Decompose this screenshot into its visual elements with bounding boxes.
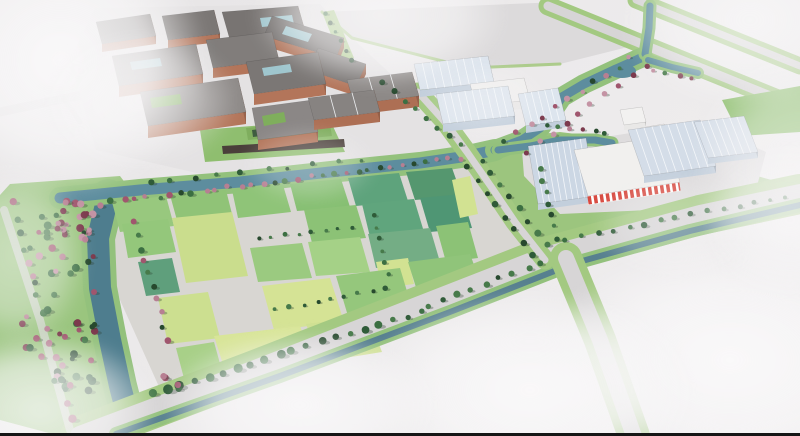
masterplan-aerial-rendering xyxy=(0,0,800,436)
plot-c3r2 xyxy=(308,237,370,276)
branch-road-south xyxy=(566,258,634,436)
plot-c3r0 xyxy=(290,179,350,211)
pond-white-building xyxy=(620,107,646,130)
plot-c3r1 xyxy=(304,205,366,243)
site-plan-scene xyxy=(0,0,800,436)
plot-c2r2 xyxy=(250,243,312,282)
campus-building-bottom-center xyxy=(252,100,318,150)
river-branch-up xyxy=(645,6,650,54)
plot-c0r1 xyxy=(122,219,176,258)
greenhouse-b xyxy=(436,86,515,132)
